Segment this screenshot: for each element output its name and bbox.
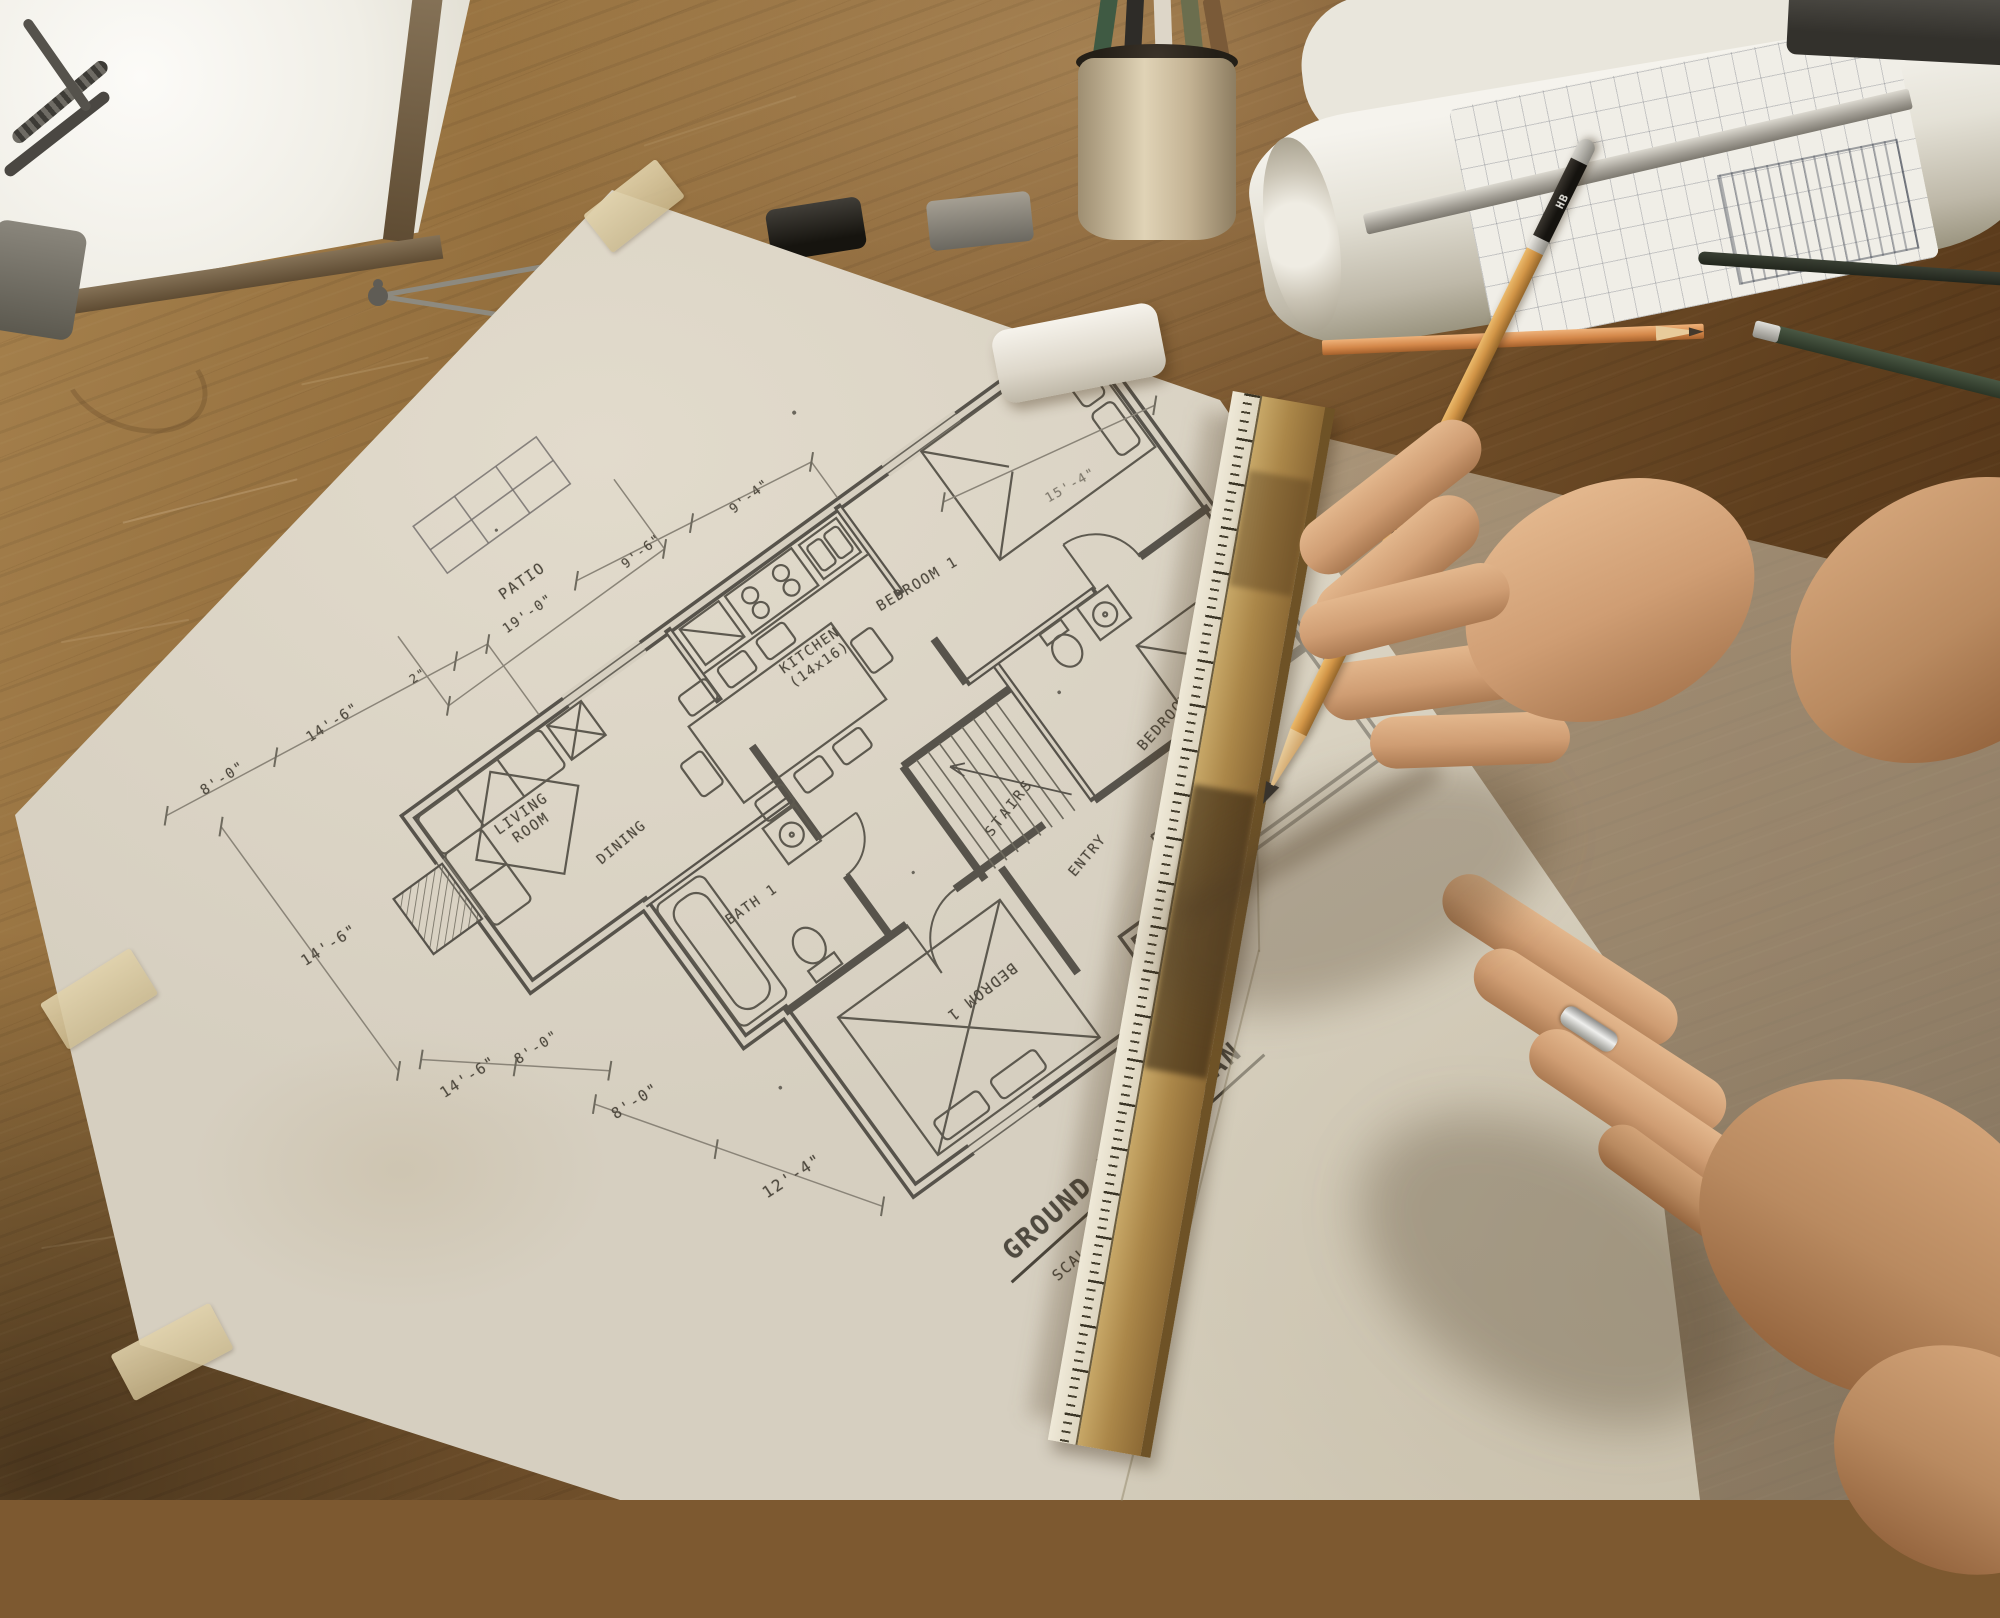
right-hand-pinky-finger: [1369, 711, 1571, 770]
pencil-tip-wood: [1656, 324, 1691, 340]
pencil-tip: [1689, 327, 1704, 337]
